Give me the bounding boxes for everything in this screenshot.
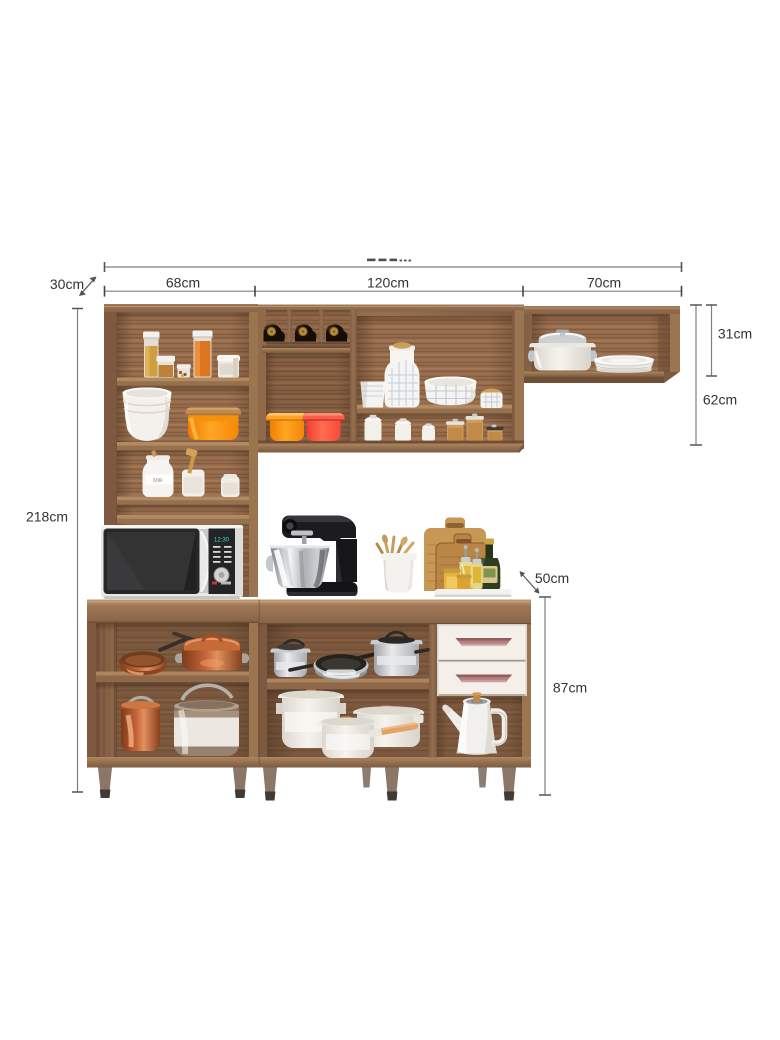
svg-text:31cm: 31cm <box>718 326 752 342</box>
svg-text:12:30: 12:30 <box>214 538 230 544</box>
svg-text:50cm: 50cm <box>535 570 569 586</box>
svg-text:62cm: 62cm <box>703 392 737 408</box>
svg-text:70cm: 70cm <box>587 275 621 291</box>
svg-text:218cm: 218cm <box>26 509 68 525</box>
svg-text:68cm: 68cm <box>166 275 200 291</box>
svg-text:87cm: 87cm <box>553 680 587 696</box>
svg-text:30cm: 30cm <box>50 276 84 292</box>
svg-text:Milk: Milk <box>153 478 163 484</box>
svg-text:120cm: 120cm <box>367 275 409 291</box>
